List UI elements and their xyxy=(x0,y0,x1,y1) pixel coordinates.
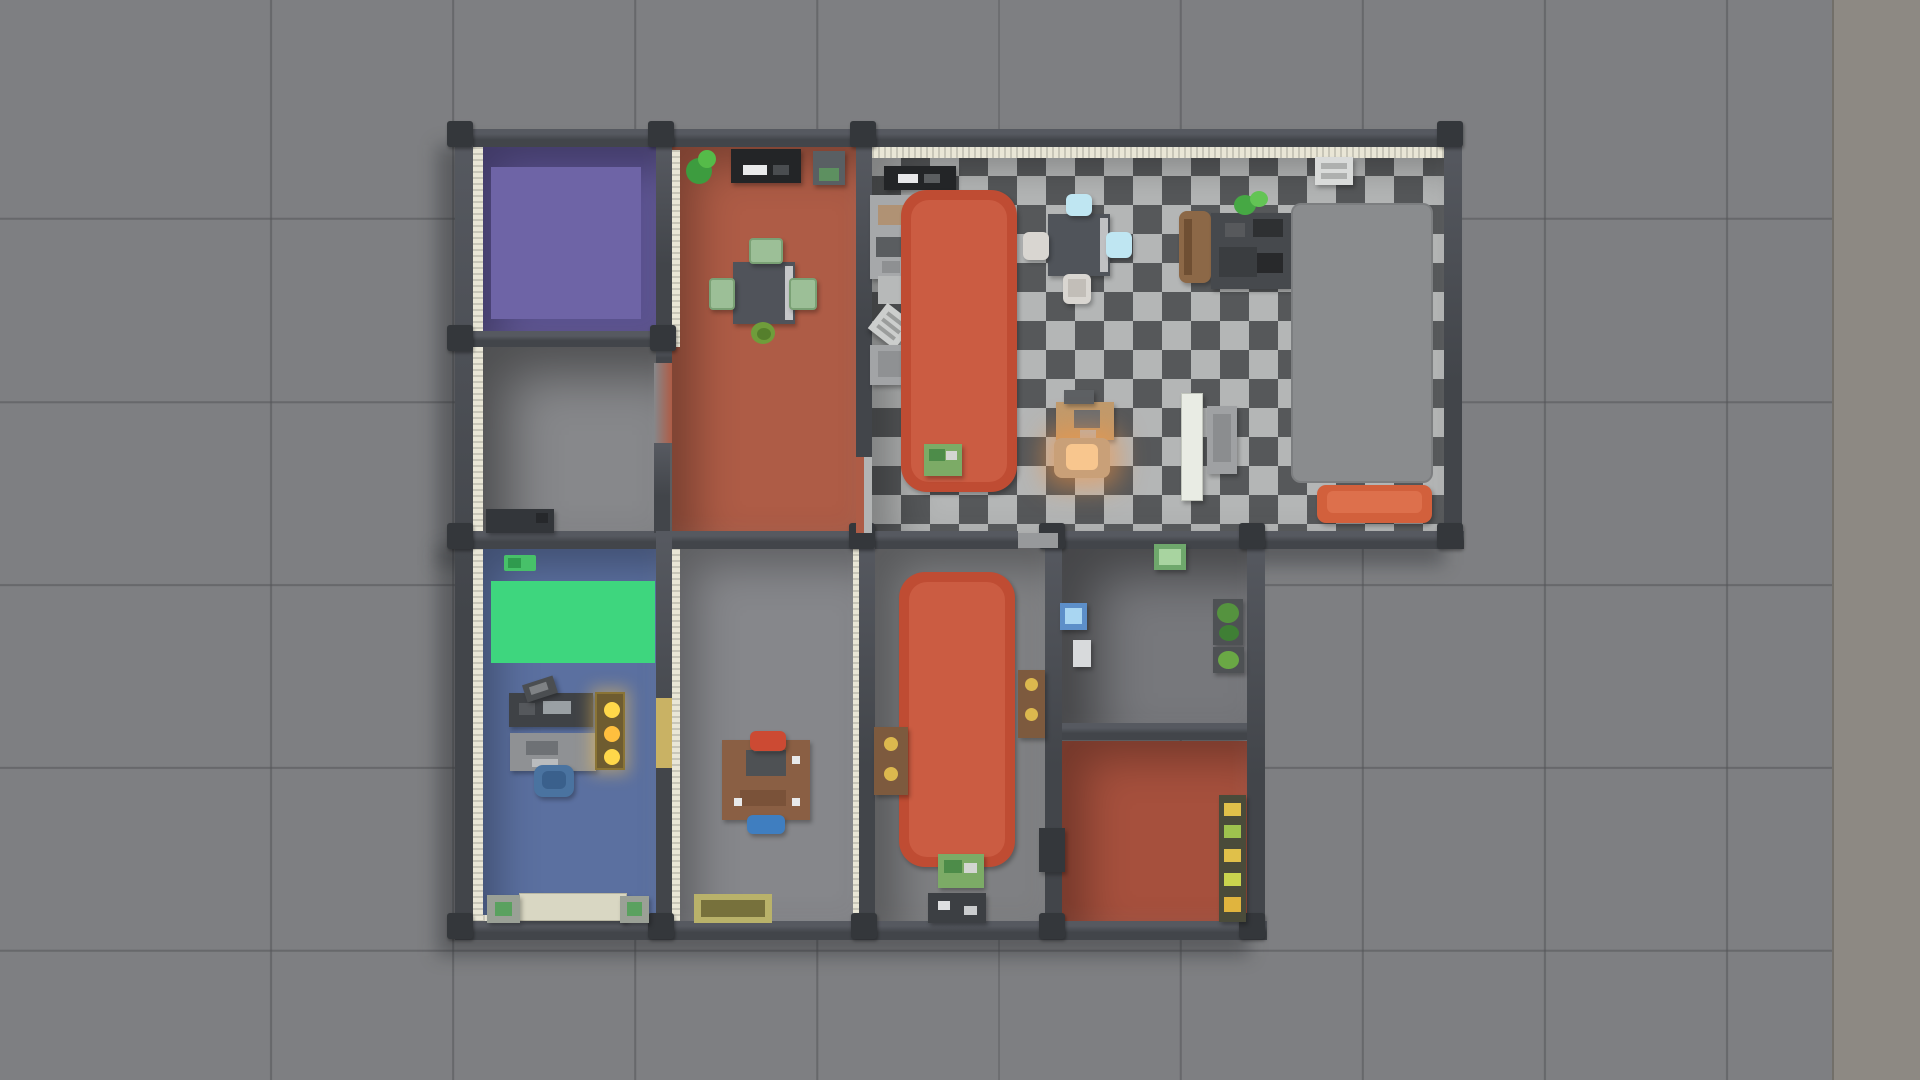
window-green[interactable] xyxy=(1154,544,1186,570)
wall-column-3 xyxy=(1437,121,1463,147)
doorway-red-checker xyxy=(856,457,872,533)
wall-under-purple xyxy=(455,331,672,347)
shape xyxy=(740,790,786,806)
couch-orange[interactable] xyxy=(1317,485,1432,523)
wall-exterior-right-upper xyxy=(1444,129,1462,549)
shape xyxy=(898,174,918,183)
wall-unit-white[interactable] xyxy=(1315,157,1353,185)
shape xyxy=(519,703,535,715)
rug-gray[interactable] xyxy=(1291,203,1433,483)
shape xyxy=(1224,825,1241,838)
meeting-table-2[interactable] xyxy=(1048,214,1110,276)
trim-graymid-left xyxy=(672,548,680,921)
shape xyxy=(495,902,512,916)
wall-column-6 xyxy=(447,523,473,549)
shape xyxy=(819,168,839,181)
lounge-coffee-table[interactable] xyxy=(924,444,962,476)
wall-tv[interactable] xyxy=(731,149,801,183)
plant-tall[interactable] xyxy=(1213,599,1243,645)
wall-tv-2[interactable] xyxy=(884,166,956,190)
shape xyxy=(1065,608,1082,624)
shape xyxy=(757,328,771,340)
shape xyxy=(929,449,945,461)
wall-column-12 xyxy=(648,913,674,939)
wall-column-1 xyxy=(648,121,674,147)
shape xyxy=(1321,163,1347,169)
shape xyxy=(909,582,1005,857)
shape xyxy=(746,750,786,776)
trim-checker-top xyxy=(872,147,1444,158)
shape xyxy=(604,749,620,765)
wall-column-9 xyxy=(1239,523,1265,549)
shape xyxy=(792,756,800,764)
shape xyxy=(1184,219,1192,275)
wall-exterior-right-lower xyxy=(1247,531,1265,940)
shape xyxy=(1219,247,1257,277)
chair-cyan-north[interactable] xyxy=(1066,194,1092,216)
shape xyxy=(542,771,566,789)
shape xyxy=(508,558,521,568)
shape xyxy=(1219,625,1239,641)
shape xyxy=(734,798,742,806)
wall-column-13 xyxy=(851,913,877,939)
door-tan[interactable] xyxy=(656,698,672,768)
rug-purple[interactable] xyxy=(491,167,641,319)
shape xyxy=(1321,173,1347,179)
shape xyxy=(1327,491,1422,513)
side-table-left[interactable] xyxy=(874,727,908,795)
wall-right-horizontal xyxy=(1062,723,1247,740)
shape xyxy=(1224,897,1241,912)
desk-duo[interactable] xyxy=(1211,213,1291,289)
shape xyxy=(701,900,765,917)
shape xyxy=(1253,219,1283,237)
meeting-table[interactable] xyxy=(733,262,795,324)
shape xyxy=(1217,603,1239,623)
shape xyxy=(543,701,571,714)
printer[interactable] xyxy=(1064,390,1094,404)
wall-column-11 xyxy=(447,913,473,939)
shape xyxy=(1025,708,1038,721)
shape xyxy=(876,237,904,257)
desk-plant[interactable] xyxy=(1232,191,1270,217)
arcade-gold[interactable] xyxy=(595,692,625,770)
chair-brown[interactable] xyxy=(1179,211,1211,283)
chair-cyan-east[interactable] xyxy=(1106,232,1132,258)
chair-green-east[interactable] xyxy=(789,278,817,310)
wall-column-4 xyxy=(447,325,473,351)
chair-blue-middleroom[interactable] xyxy=(747,815,785,834)
shape xyxy=(884,737,898,751)
shape xyxy=(1066,444,1098,470)
ground-accent-strip xyxy=(1832,0,1920,1080)
wall-exterior-top xyxy=(455,129,1462,147)
shape xyxy=(1080,430,1096,438)
paper-green[interactable] xyxy=(504,555,536,571)
chair-glow-orange[interactable] xyxy=(1054,438,1110,478)
bench-cream[interactable] xyxy=(519,893,627,921)
shape xyxy=(627,902,642,916)
shape xyxy=(1218,651,1239,669)
wall-gray-left-lower xyxy=(654,441,670,533)
shape xyxy=(1213,414,1231,462)
wall-column-5 xyxy=(650,325,676,351)
wall-column-2 xyxy=(850,121,876,147)
shape xyxy=(1224,849,1241,862)
cabinet-wall[interactable] xyxy=(1039,828,1065,872)
potted-plant-corner[interactable] xyxy=(684,150,718,190)
bench-end-right[interactable] xyxy=(620,896,649,923)
locker-gray[interactable] xyxy=(1207,406,1237,474)
shape xyxy=(1025,678,1038,691)
wall-divide-left xyxy=(455,531,1018,549)
chair-green-west[interactable] xyxy=(709,278,735,310)
shape xyxy=(924,174,940,183)
wall-column-14 xyxy=(1039,913,1065,939)
shape xyxy=(792,798,800,806)
shape xyxy=(1068,279,1086,297)
wall-item-white[interactable] xyxy=(1073,640,1091,667)
shape xyxy=(1224,803,1241,816)
wall-gray-sofa xyxy=(859,531,875,923)
shape xyxy=(536,513,548,523)
side-table-right[interactable] xyxy=(1018,670,1045,738)
shape xyxy=(944,860,962,873)
chair-blue-blueroom[interactable] xyxy=(534,765,574,797)
coffee-table-green[interactable] xyxy=(938,854,984,888)
shape xyxy=(1224,873,1241,886)
shape xyxy=(698,150,716,168)
desk-small-south[interactable] xyxy=(928,893,986,923)
shape xyxy=(964,863,977,873)
shape xyxy=(773,165,789,175)
desk-brown[interactable] xyxy=(722,740,810,820)
plant-short[interactable] xyxy=(1213,647,1244,673)
shelf-gold[interactable] xyxy=(1219,795,1246,922)
doormat[interactable] xyxy=(694,894,772,923)
chair-red[interactable] xyxy=(750,731,786,751)
side-table-green[interactable] xyxy=(813,151,845,185)
chair-green-north[interactable] xyxy=(749,238,783,264)
room-gray-left[interactable] xyxy=(473,347,656,533)
wall-column-10 xyxy=(1437,523,1463,549)
door-threshold[interactable] xyxy=(1018,533,1058,548)
wall-red-checker xyxy=(856,143,872,457)
chair-white-south[interactable] xyxy=(1063,274,1091,304)
shape xyxy=(743,165,767,175)
sofa-red[interactable] xyxy=(899,572,1015,867)
shape xyxy=(938,901,950,910)
wall-column-0 xyxy=(447,121,473,147)
cabinet-dark[interactable] xyxy=(486,509,554,533)
shape xyxy=(882,261,900,273)
shape xyxy=(946,451,957,460)
desk-tan[interactable] xyxy=(1056,402,1114,440)
rug-green[interactable] xyxy=(491,581,655,663)
trim-left-lower xyxy=(473,548,483,921)
shape xyxy=(1159,549,1181,565)
shape xyxy=(529,682,549,695)
trim-red-left xyxy=(672,150,680,347)
shape xyxy=(1257,253,1283,273)
chair-white-west[interactable] xyxy=(1023,232,1049,260)
shape xyxy=(911,200,1007,482)
shape xyxy=(964,906,977,915)
shape xyxy=(1074,410,1100,428)
wall-screen-blue[interactable] xyxy=(1060,603,1087,630)
doorway-gray-red xyxy=(654,363,672,443)
potted-plant-south[interactable] xyxy=(747,320,779,348)
shape xyxy=(604,726,620,742)
desk-dark-blueroom[interactable] xyxy=(509,693,593,727)
shape xyxy=(1250,191,1268,207)
shape xyxy=(884,767,898,781)
bench-end-left[interactable] xyxy=(487,895,520,923)
shape xyxy=(1225,223,1245,237)
shape xyxy=(604,702,620,718)
shape xyxy=(526,741,558,755)
wall-purple-right xyxy=(656,143,672,347)
whiteboard[interactable] xyxy=(1181,393,1203,501)
